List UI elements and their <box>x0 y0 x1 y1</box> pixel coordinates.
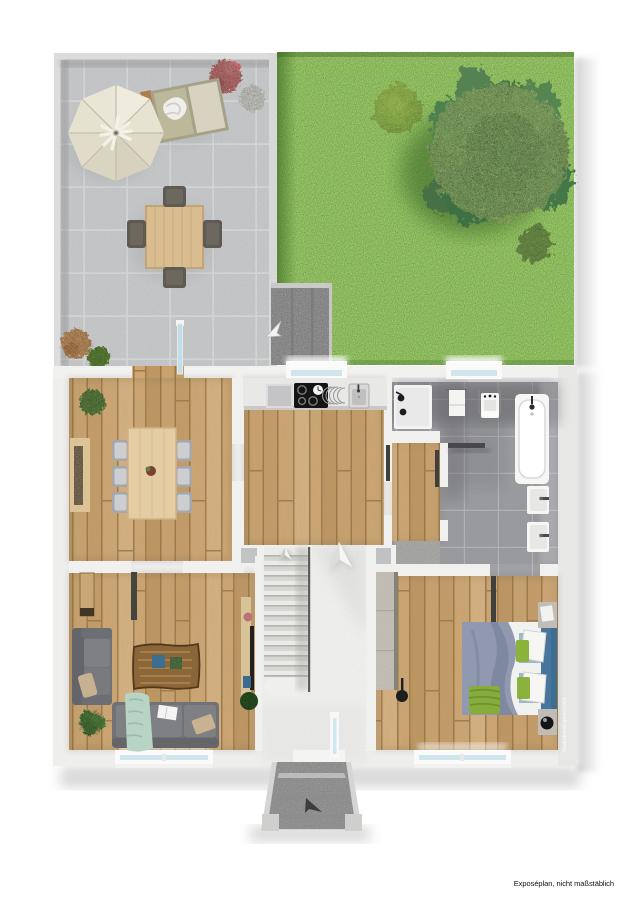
svg-text:IllustrationsExposeGrafik: IllustrationsExposeGrafik <box>562 696 568 752</box>
svg-text:Exposéplan, nicht maßstäblich: Exposéplan, nicht maßstäblich <box>514 879 614 888</box>
